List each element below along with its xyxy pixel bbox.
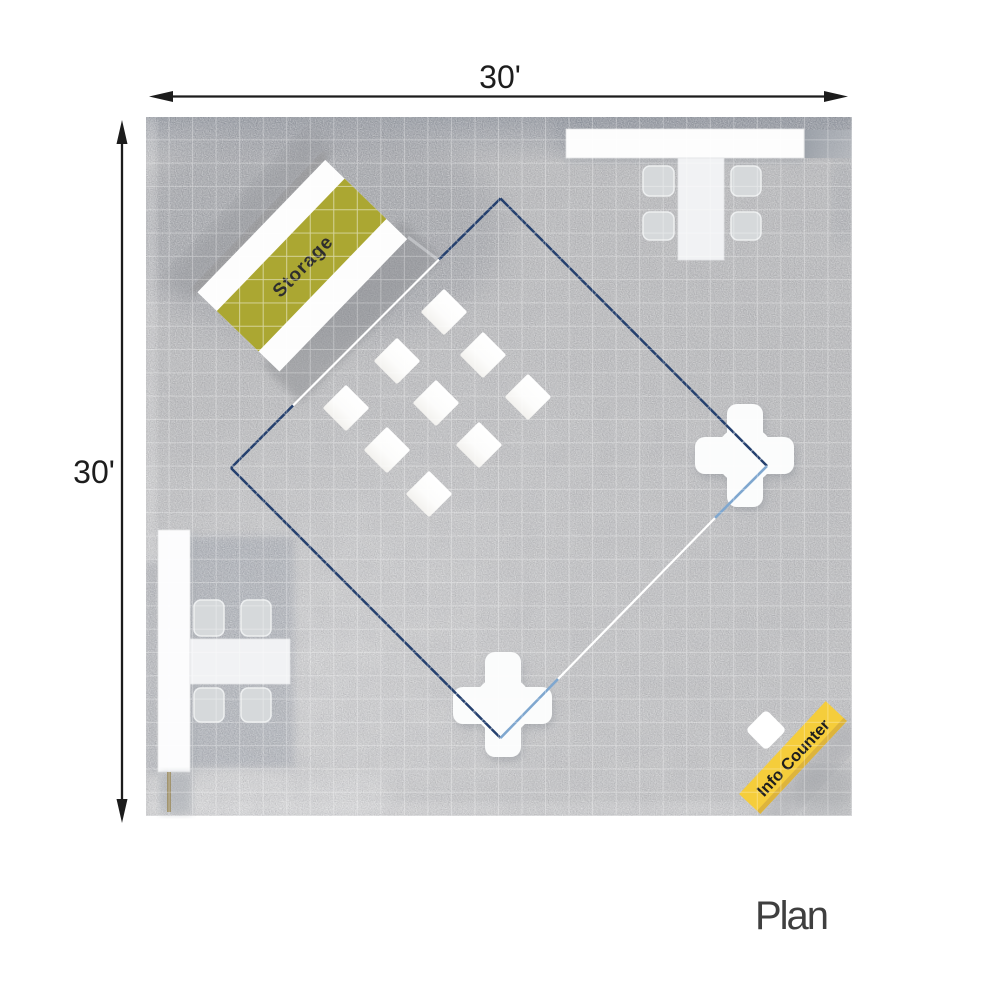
svg-text:30': 30': [73, 454, 115, 490]
svg-text:Plan: Plan: [755, 894, 827, 938]
svg-text:30': 30': [479, 59, 521, 95]
